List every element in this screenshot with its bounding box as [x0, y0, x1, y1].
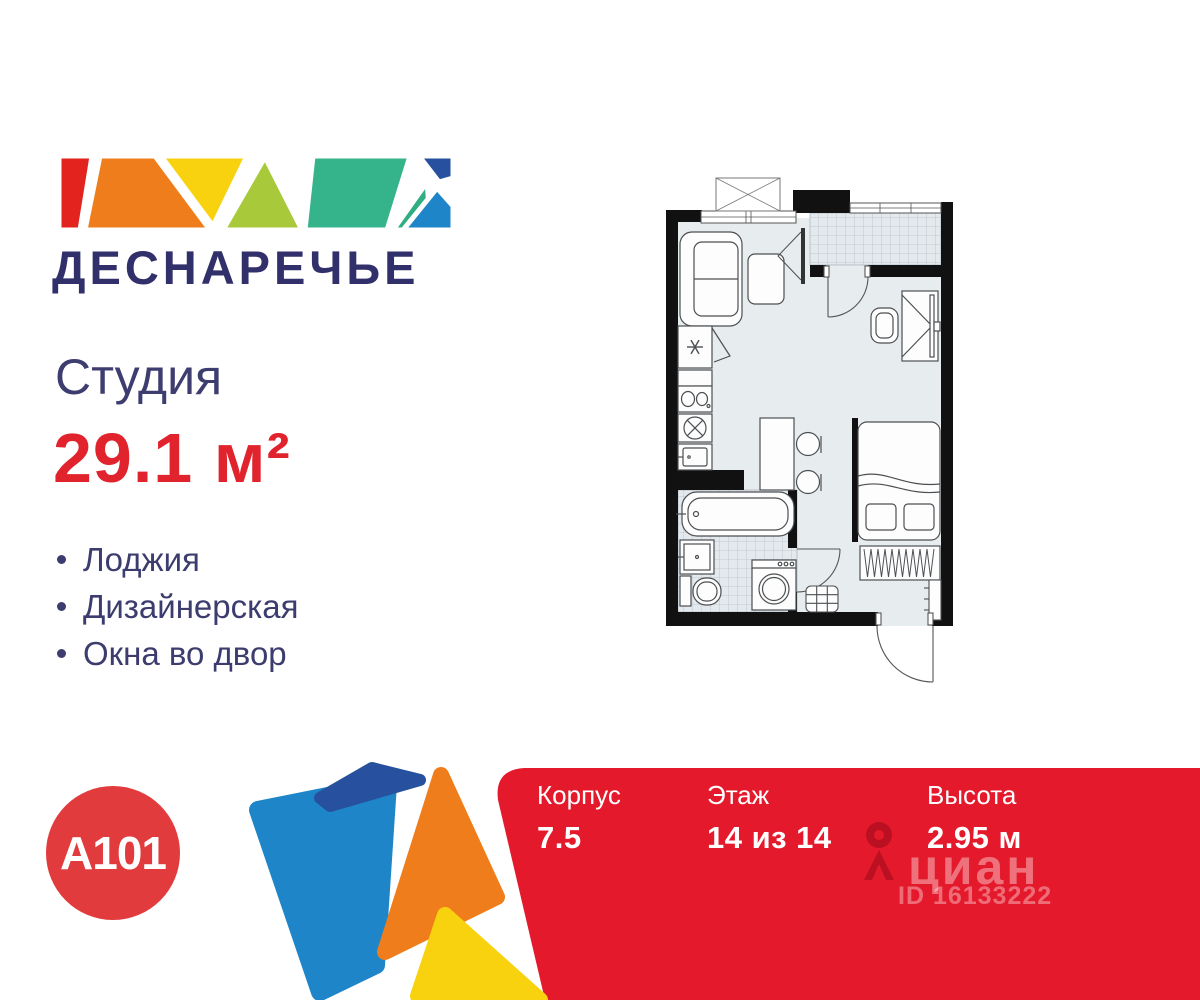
desk-chair	[871, 308, 898, 343]
desk	[902, 291, 940, 361]
entry-threshold	[878, 612, 932, 626]
room-window	[701, 211, 796, 223]
counter	[678, 370, 712, 386]
developer-logo-text: А101	[60, 826, 166, 880]
tv-stand	[748, 254, 784, 304]
stat-building: Корпус 7.5	[537, 780, 621, 856]
developer-logo-badge: А101	[46, 786, 180, 920]
stat-label: Корпус	[537, 780, 621, 811]
toilet	[680, 576, 721, 606]
feature-item: Дизайнерская	[57, 583, 299, 630]
bullet-icon	[57, 555, 66, 564]
feature-item: Окна во двор	[57, 630, 299, 677]
wardrobe	[860, 546, 940, 580]
cian-pin-icon	[856, 820, 902, 882]
ac-box-icon	[716, 178, 780, 211]
bathroom-sink	[678, 540, 714, 574]
feature-item: Лоджия	[57, 536, 299, 583]
kitchen-cabinet	[678, 444, 712, 470]
bullet-icon	[57, 649, 66, 658]
bullet-icon	[57, 602, 66, 611]
bottom-mosaic	[220, 740, 1200, 1000]
feature-label: Окна во двор	[83, 635, 287, 673]
listing-card: ДЕСНАРЕЧЬЕ Студия 29.1 м² Лоджия Дизайне…	[0, 0, 1200, 1000]
feature-label: Лоджия	[83, 541, 200, 579]
decor-shape-yellow	[418, 915, 540, 1000]
decor-shape-blue	[258, 784, 388, 992]
loggia-window	[850, 203, 941, 213]
stool-icon	[797, 471, 820, 494]
feature-list: Лоджия Дизайнерская Окна во двор	[57, 536, 299, 677]
bathtub	[676, 492, 794, 536]
feature-label: Дизайнерская	[83, 588, 299, 626]
stat-value: 7.5	[537, 820, 621, 856]
loggia-floor	[810, 213, 941, 265]
stove-icon	[678, 414, 712, 442]
stat-floor: Этаж 14 из 14	[707, 780, 832, 856]
stat-value: 14 из 14	[707, 820, 832, 856]
stat-label: Этаж	[707, 780, 832, 811]
sofa	[680, 232, 742, 326]
unit-type-title: Студия	[55, 348, 222, 406]
pillow	[866, 504, 896, 530]
pillow	[904, 504, 934, 530]
floor-plan	[656, 172, 956, 717]
shoe-cabinet	[806, 586, 838, 612]
kitchen-sink-icon	[678, 386, 712, 412]
listing-id-watermark: ID 16133222	[898, 882, 1052, 911]
brand-mosaic-icon	[55, 148, 457, 236]
washing-machine	[752, 560, 796, 610]
stat-label: Высота	[927, 780, 1022, 811]
stool-icon	[797, 433, 820, 456]
decor-shape-navy	[320, 768, 420, 806]
bed	[858, 422, 940, 540]
unit-area: 29.1 м²	[53, 418, 291, 498]
complex-name: ДЕСНАРЕЧЬЕ	[52, 240, 420, 295]
